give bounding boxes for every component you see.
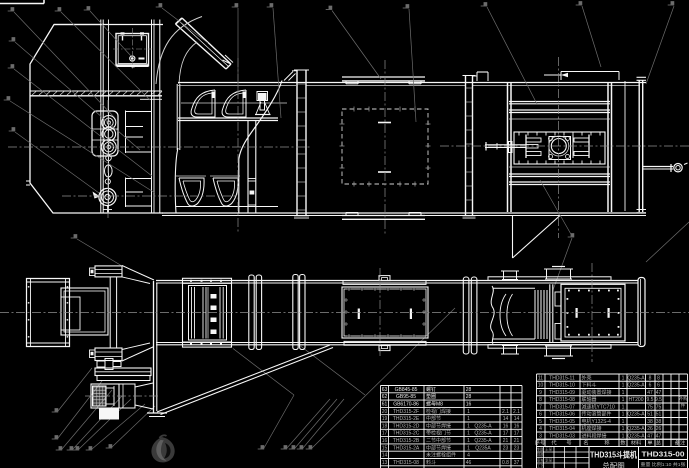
- svg-text:THD315-10: THD315-10: [549, 383, 575, 389]
- svg-text:13: 13: [382, 460, 388, 466]
- svg-text:16: 16: [382, 438, 388, 444]
- svg-text:2.1: 2.1: [502, 409, 509, 415]
- svg-text:46: 46: [466, 460, 472, 466]
- svg-text:28: 28: [466, 387, 472, 393]
- svg-text:8: 8: [657, 375, 660, 381]
- svg-text:THD315-05: THD315-05: [549, 419, 575, 425]
- svg-text:名: 名: [583, 439, 588, 447]
- svg-text:1: 1: [467, 445, 470, 451]
- svg-text:THD315-00: THD315-00: [642, 450, 685, 459]
- svg-text:王某: 王某: [545, 447, 553, 452]
- svg-text:Q235-A: Q235-A: [474, 431, 492, 437]
- svg-text:THD315-2E: THD315-2E: [393, 416, 420, 422]
- svg-text:10: 10: [538, 383, 544, 389]
- svg-text:9.5: 9.5: [655, 397, 662, 403]
- svg-text:中部节焊接: 中部节焊接: [426, 422, 451, 429]
- svg-text:6: 6: [657, 383, 660, 389]
- svg-text:1: 1: [467, 423, 470, 429]
- svg-text:16: 16: [514, 423, 520, 429]
- svg-text:63: 63: [382, 387, 388, 393]
- svg-text:THD315-09: THD315-09: [549, 390, 575, 396]
- svg-text:16: 16: [503, 423, 509, 429]
- svg-text:机座焊接: 机座焊接: [582, 425, 602, 432]
- svg-text:THD315-08: THD315-08: [549, 397, 575, 403]
- svg-text:材料: 材料: [631, 439, 641, 447]
- svg-text:THD315-2C: THD315-2C: [393, 431, 420, 437]
- svg-text:17: 17: [503, 431, 509, 437]
- svg-text:描图: 描图: [537, 452, 545, 457]
- svg-text:62: 62: [382, 394, 388, 400]
- svg-text:审核: 审核: [537, 458, 545, 463]
- svg-text:1: 1: [622, 383, 625, 389]
- svg-text:1: 1: [622, 412, 625, 418]
- svg-text:序号: 序号: [535, 439, 545, 447]
- svg-text:THD315-2B: THD315-2B: [393, 438, 420, 444]
- svg-text:称: 称: [604, 439, 609, 447]
- svg-text:26: 26: [656, 426, 662, 432]
- svg-text:Q235-A: Q235-A: [627, 375, 645, 381]
- svg-text:THD315-2A: THD315-2A: [393, 445, 420, 451]
- svg-text:THD315-04: THD315-04: [549, 426, 575, 432]
- svg-text:THD315-2F: THD315-2F: [393, 409, 419, 415]
- svg-text:GB95-85: GB95-85: [396, 394, 416, 400]
- svg-text:1: 1: [622, 419, 625, 425]
- svg-text:联轴器: 联轴器: [582, 396, 597, 403]
- svg-text:Q235-A: Q235-A: [474, 423, 492, 429]
- svg-text:1: 1: [467, 438, 470, 444]
- svg-text:0.8: 0.8: [502, 460, 509, 466]
- svg-text:3: 3: [539, 433, 542, 439]
- svg-text:THD315-07: THD315-07: [549, 404, 575, 410]
- svg-text:Q235-A: Q235-A: [627, 383, 645, 389]
- svg-text:1: 1: [467, 416, 470, 422]
- svg-text:20: 20: [382, 409, 388, 415]
- svg-text:減速机YTC710: 減速机YTC710: [582, 403, 616, 410]
- svg-text:号: 号: [566, 440, 571, 447]
- svg-text:1: 1: [622, 426, 625, 432]
- svg-text:Q235A: Q235A: [475, 445, 491, 451]
- svg-text:19: 19: [382, 416, 388, 422]
- svg-text:4: 4: [467, 453, 470, 459]
- svg-text:李某: 李某: [545, 458, 553, 463]
- svg-text:38: 38: [656, 419, 662, 425]
- svg-text:检视门焊接: 检视门焊接: [426, 408, 451, 415]
- svg-text:28: 28: [466, 394, 472, 400]
- svg-text:8: 8: [649, 375, 652, 381]
- svg-text:5: 5: [539, 419, 542, 425]
- svg-text:37: 37: [514, 460, 520, 466]
- svg-text:制图: 制图: [537, 447, 545, 452]
- svg-text:中部节焊接: 中部节焊接: [426, 444, 451, 451]
- svg-text:外购: 外购: [679, 395, 688, 402]
- svg-text:工艺: 工艺: [537, 463, 545, 468]
- svg-text:数: 数: [620, 439, 626, 447]
- svg-text:HT200: HT200: [628, 397, 643, 403]
- svg-text:总配图: 总配图: [602, 461, 625, 468]
- svg-text:17: 17: [382, 431, 388, 437]
- svg-text:26: 26: [647, 426, 653, 432]
- svg-text:2.1: 2.1: [513, 409, 520, 415]
- svg-text:THD315-2D: THD315-2D: [393, 423, 420, 429]
- svg-text:21: 21: [514, 438, 520, 444]
- svg-text:Q235-A: Q235-A: [627, 433, 645, 439]
- svg-text:THD315-03: THD315-03: [549, 433, 575, 439]
- svg-text:电机Y132S-4: 电机Y132S-4: [582, 418, 612, 425]
- svg-text:61: 61: [382, 402, 388, 408]
- svg-text:中部节: 中部节: [426, 415, 441, 422]
- svg-text:传动滚筒部件: 传动滚筒部件: [582, 411, 612, 418]
- svg-text:Q235-A: Q235-A: [474, 438, 492, 444]
- svg-text:14: 14: [503, 416, 509, 422]
- svg-text:8: 8: [539, 397, 542, 403]
- svg-text:15: 15: [382, 445, 388, 451]
- svg-text:14: 14: [514, 416, 520, 422]
- svg-text:1: 1: [622, 390, 625, 396]
- svg-text:件: 件: [681, 402, 686, 409]
- svg-text:二节中部节: 二节中部节: [426, 437, 451, 444]
- svg-text:6: 6: [649, 383, 652, 389]
- svg-text:1: 1: [467, 409, 470, 415]
- svg-text:THD315-11: THD315-11: [549, 375, 575, 381]
- svg-text:THD315-06: THD315-06: [549, 412, 575, 418]
- svg-text:6: 6: [539, 412, 542, 418]
- svg-text:75: 75: [647, 404, 653, 410]
- svg-text:17: 17: [514, 431, 520, 437]
- svg-text:单: 单: [647, 439, 652, 447]
- svg-text:23: 23: [503, 445, 509, 451]
- svg-text:THD315-08: THD315-08: [393, 460, 419, 466]
- svg-text:38: 38: [647, 419, 653, 425]
- svg-text:GB6170-86: GB6170-86: [393, 402, 419, 408]
- svg-text:14: 14: [382, 453, 388, 459]
- svg-text:1: 1: [467, 431, 470, 437]
- svg-text:75: 75: [656, 404, 662, 410]
- svg-text:外壳: 外壳: [582, 374, 592, 381]
- svg-text:Q235-A: Q235-A: [627, 426, 645, 432]
- svg-text:1: 1: [622, 404, 625, 410]
- svg-text:THD315斗提机: THD315斗提机: [590, 450, 637, 460]
- svg-text:进料段焊接: 进料段焊接: [582, 432, 607, 439]
- svg-text:23: 23: [514, 445, 520, 451]
- svg-text:7: 7: [539, 404, 542, 410]
- svg-text:备注: 备注: [675, 439, 685, 447]
- svg-text:51: 51: [656, 412, 662, 418]
- svg-text:GB845-85: GB845-85: [395, 387, 418, 393]
- svg-text:18: 18: [382, 423, 388, 429]
- svg-text:下料斗: 下料斗: [582, 382, 597, 389]
- svg-text:重量 比例1:10 共1张: 重量 比例1:10 共1张: [641, 461, 686, 468]
- svg-text:1: 1: [622, 375, 625, 381]
- svg-text:9.5: 9.5: [647, 397, 654, 403]
- svg-text:驱动装置焊接: 驱动装置焊接: [582, 389, 612, 396]
- svg-text:47: 47: [656, 390, 662, 396]
- svg-text:螺母M8: 螺母M8: [426, 401, 443, 408]
- svg-text:47: 47: [656, 433, 662, 439]
- svg-text:料斗: 料斗: [426, 459, 436, 466]
- svg-text:47: 47: [647, 433, 653, 439]
- svg-text:1: 1: [622, 433, 625, 439]
- svg-text:垫圈: 垫圈: [426, 393, 436, 400]
- svg-text:51: 51: [647, 412, 653, 418]
- svg-text:4: 4: [539, 426, 542, 432]
- svg-text:21: 21: [503, 438, 509, 444]
- svg-text:代: 代: [551, 439, 557, 447]
- svg-text:47: 47: [647, 390, 653, 396]
- svg-text:总: 总: [656, 439, 661, 447]
- svg-text:未注螺栓组件: 未注螺栓组件: [426, 452, 456, 459]
- svg-text:11: 11: [538, 375, 543, 381]
- svg-text:9: 9: [539, 390, 542, 396]
- svg-text:Q235-A: Q235-A: [627, 412, 645, 418]
- svg-text:螺钉: 螺钉: [426, 386, 436, 393]
- svg-text:1: 1: [622, 397, 625, 403]
- svg-text:带检视门节: 带检视门节: [426, 430, 451, 437]
- svg-text:16: 16: [466, 402, 472, 408]
